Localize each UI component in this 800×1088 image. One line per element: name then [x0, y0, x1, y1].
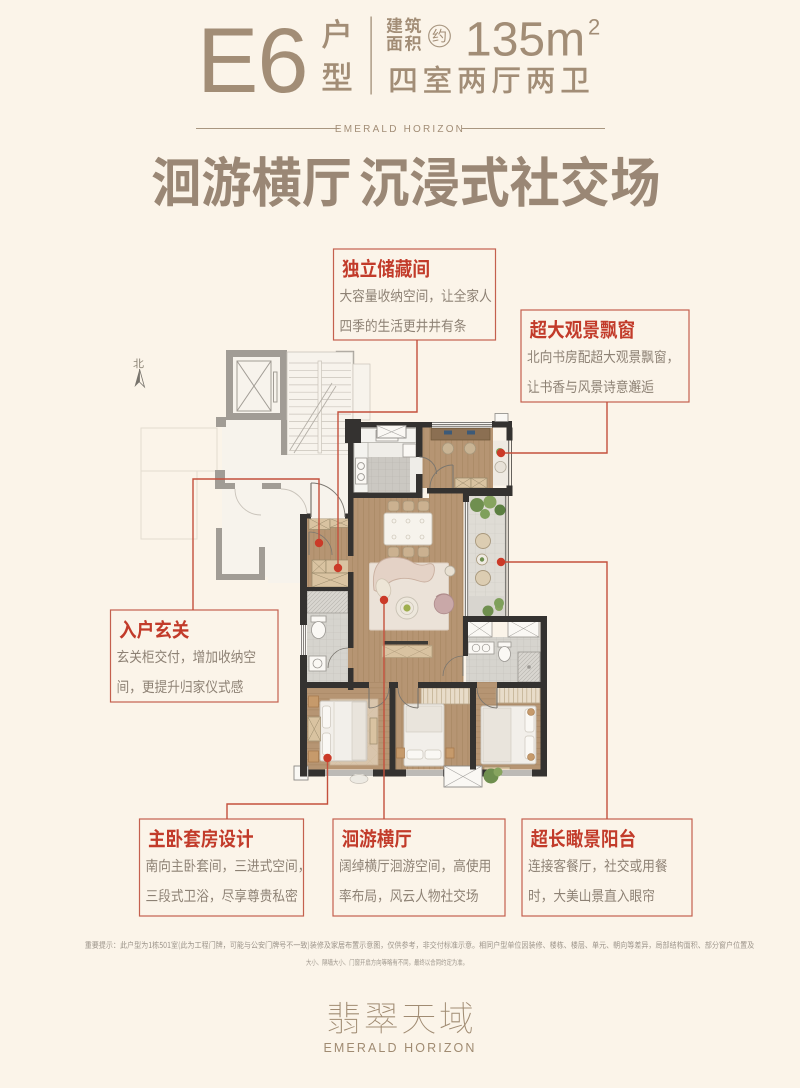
svg-text:EMERALD HORIZON: EMERALD HORIZON — [335, 124, 465, 135]
svg-text:EMERALD HORIZON: EMERALD HORIZON — [323, 1041, 476, 1055]
svg-text:135m: 135m — [465, 14, 585, 67]
svg-text:2: 2 — [588, 15, 600, 40]
svg-text:E6: E6 — [197, 10, 308, 112]
